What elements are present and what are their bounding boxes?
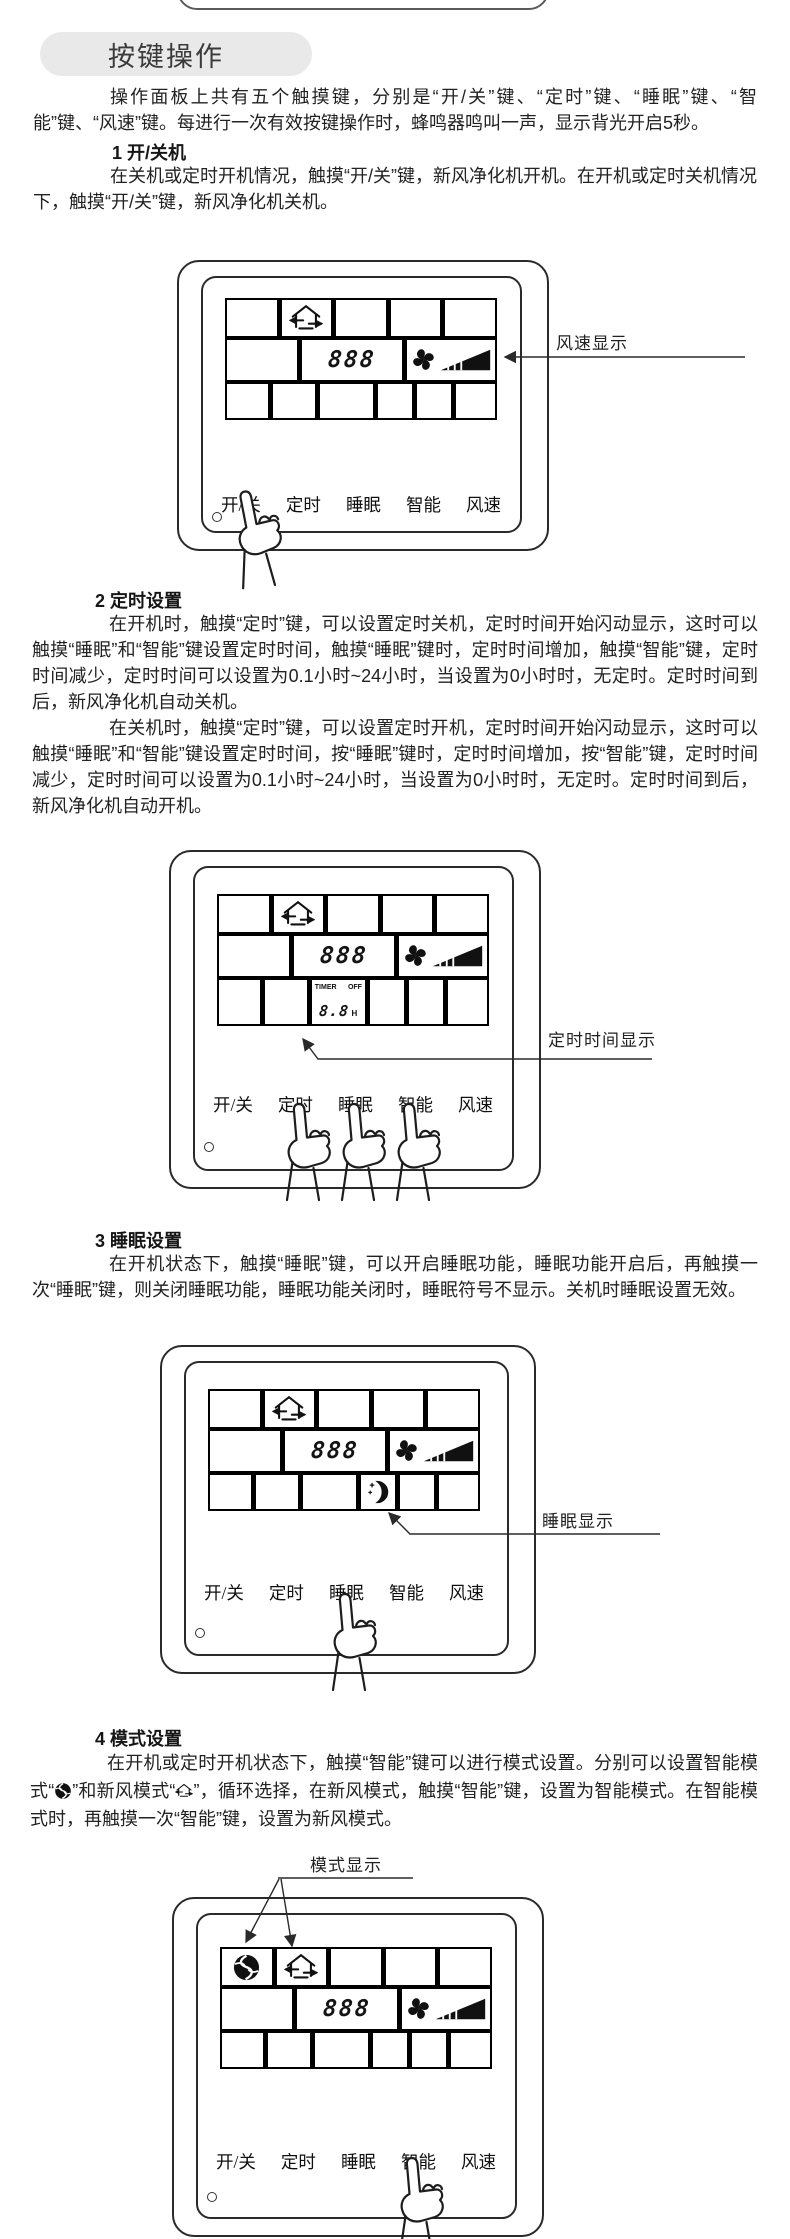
- lcd-cell: [440, 1949, 490, 1985]
- lcd-cell: [219, 896, 269, 932]
- callout-sleep-display: 睡眠显示: [542, 1507, 614, 1532]
- lcd-cell-timer: TIMER OFF 8.8 H: [312, 980, 365, 1024]
- lcd-cell: [370, 980, 404, 1024]
- lcd-display: 888: [208, 1389, 480, 1511]
- lcd-cell-fresh-air: [265, 1391, 315, 1427]
- lcd-row-3: TIMER OFF 8.8 H: [219, 980, 487, 1024]
- crescent-moon-icon: [367, 1479, 389, 1505]
- button-label-timer: 定时: [286, 492, 321, 517]
- lcd-cell: [227, 384, 268, 418]
- button-label-fan: 风速: [466, 492, 501, 517]
- button-label-smart: 智能: [406, 492, 441, 517]
- smart-mode-icon: [232, 1953, 261, 1982]
- lcd-display: 888: [225, 298, 497, 420]
- house-fresh-air-icon: [289, 304, 323, 333]
- lcd-row-2: 888: [222, 1989, 490, 2029]
- lcd-cell: [303, 1475, 356, 1509]
- lcd-cell: [451, 2033, 490, 2067]
- lcd-cell: [222, 1989, 292, 2029]
- section-1-title: 1 开/关机: [112, 139, 186, 165]
- lcd-cell: [320, 384, 373, 418]
- lcd-cell: [412, 2033, 446, 2067]
- button-label-power: 开/关: [216, 2149, 256, 2174]
- lcd-cell: [456, 384, 495, 418]
- house-fresh-air-icon: [281, 900, 315, 929]
- smart-mode-icon: [54, 1782, 72, 1800]
- lcd-cell-digits: 888: [285, 1431, 386, 1471]
- lcd-cell-digits: 888: [297, 1989, 398, 2029]
- pointing-hand-icon: [393, 2156, 455, 2239]
- callout-timer-display: 定时时间显示: [548, 1026, 656, 1051]
- lcd-cell: [219, 980, 260, 1024]
- pointing-hand-icon: [280, 1102, 342, 1202]
- button-label-power: 开/关: [213, 1092, 253, 1117]
- lcd-row-3: [210, 1475, 478, 1509]
- lcd-cell: [383, 896, 433, 932]
- lcd-cell: [373, 2033, 407, 2067]
- button-label-power: 开/关: [204, 1580, 244, 1605]
- lcd-cell: [268, 2033, 309, 2067]
- lcd-cell: [210, 1431, 280, 1471]
- timer-digits: 8.8: [319, 1002, 351, 1020]
- lcd-cell-fan-speed: [402, 1989, 490, 2029]
- timer-label: TIMER: [315, 984, 337, 991]
- lcd-cell: [336, 300, 386, 336]
- lcd-digits: 888: [319, 943, 369, 969]
- indicator-led: [212, 512, 222, 522]
- lcd-digits: 888: [327, 347, 377, 373]
- lcd-row-1: [210, 1391, 478, 1427]
- lcd-cell: [319, 1391, 369, 1427]
- lcd-cell: [378, 384, 412, 418]
- pointing-hand-icon: [335, 1102, 397, 1202]
- lcd-cell-digits: 888: [294, 936, 395, 976]
- pointing-hand-icon: [326, 1592, 388, 1692]
- previous-figure-bottom-edge: [177, 0, 549, 10]
- lcd-cell: [437, 896, 487, 932]
- control-panel-figure-4: 888 开/关 定时 睡眠 智能 风速: [172, 1897, 544, 2237]
- indicator-led: [195, 1628, 205, 1638]
- lcd-cell: [315, 2033, 368, 2067]
- lcd-row-2: 888: [210, 1431, 478, 1471]
- lcd-cell: [386, 1949, 436, 1985]
- lcd-display: 888: [220, 1947, 492, 2069]
- lcd-row-1: [222, 1949, 490, 1985]
- lcd-row-1: [219, 896, 487, 932]
- section-1-paragraph: 在关机或定时开机情况，触摸“开/关”键，新风净化机开机。在开机或定时关机情况下，…: [33, 163, 757, 215]
- section-2-title: 2 定时设置: [95, 587, 182, 613]
- section-4-text-part: ”和新风模式“: [72, 1781, 175, 1801]
- lcd-digits: 888: [310, 1438, 360, 1464]
- lcd-cell-fan-speed: [390, 1431, 478, 1471]
- section-2-paragraph-1: 在开机时，触摸“定时”键，可以设置定时关机，定时时间开始闪动显示，这时可以触摸“…: [32, 611, 758, 715]
- lcd-cell: [265, 980, 306, 1024]
- lcd-cell-fan-speed: [399, 936, 487, 976]
- section-header-pill: 按键操作: [40, 32, 312, 76]
- lcd-row-1: [227, 300, 495, 336]
- button-label-fan: 风速: [458, 1092, 493, 1117]
- lcd-cell: [428, 1391, 478, 1427]
- lcd-display: 888 TIMER OFF 8.8: [217, 894, 489, 1026]
- page-title: 按键操作: [108, 35, 224, 74]
- section-4-title: 4 模式设置: [95, 1725, 182, 1751]
- fan-speed-icon: [391, 1437, 477, 1465]
- lcd-cell-fresh-air: [277, 1949, 327, 1985]
- button-label-sleep: 睡眠: [341, 2149, 376, 2174]
- lcd-row-2: 888: [227, 340, 495, 380]
- lcd-cell-fresh-air: [274, 896, 324, 932]
- button-label-fan: 风速: [449, 1580, 484, 1605]
- button-label-timer: 定时: [269, 1580, 304, 1605]
- lcd-cell-fresh-air: [282, 300, 332, 336]
- fan-speed-icon: [403, 1995, 489, 2023]
- section-2-paragraph-2: 在关机时，触摸“定时”键，可以设置定时开机，定时时间开始闪动显示，这时可以触摸“…: [32, 715, 758, 819]
- lcd-cell: [331, 1949, 381, 1985]
- lcd-cell: [409, 980, 443, 1024]
- lcd-cell: [328, 896, 378, 932]
- fan-speed-icon: [400, 942, 486, 970]
- button-label-sleep: 睡眠: [346, 492, 381, 517]
- callout-mode-display: 模式显示: [310, 1851, 382, 1876]
- lcd-cell: [210, 1391, 260, 1427]
- section-3-paragraph: 在开机状态下，触摸“睡眠”键，可以开启睡眠功能，睡眠功能开启后，再触摸一次“睡眠…: [32, 1251, 758, 1303]
- lcd-cell: [374, 1391, 424, 1427]
- lcd-cell: [227, 340, 297, 380]
- lcd-cell: [256, 1475, 297, 1509]
- lcd-cell-smart-mode: [222, 1949, 272, 1985]
- button-label-timer: 定时: [281, 2149, 316, 2174]
- lcd-cell-fan-speed: [407, 340, 495, 380]
- house-fresh-air-icon: [284, 1953, 318, 1982]
- lcd-cell: [273, 384, 314, 418]
- indicator-led: [207, 2192, 217, 2202]
- button-label-smart: 智能: [389, 1580, 424, 1605]
- timer-state: OFF: [348, 984, 362, 991]
- pointing-hand-icon: [390, 1102, 452, 1202]
- lcd-cell: [439, 1475, 478, 1509]
- lcd-row-3: [222, 2033, 490, 2067]
- lcd-row-2: 888: [219, 936, 487, 976]
- lcd-cell: [210, 1475, 251, 1509]
- house-fresh-air-icon: [272, 1395, 306, 1424]
- house-fresh-air-icon: [175, 1782, 193, 1800]
- lcd-cell: [391, 300, 441, 336]
- lcd-cell: [227, 300, 277, 336]
- pointing-hand-icon: [226, 485, 298, 591]
- section-3-title: 3 睡眠设置: [95, 1227, 182, 1253]
- timer-display: TIMER OFF 8.8 H: [314, 982, 363, 1022]
- manual-page: 按键操作 操作面板上共有五个触摸键，分别是“开/关”键、“定时”键、“睡眠”键、…: [0, 0, 790, 2239]
- lcd-cell: [417, 384, 451, 418]
- intro-paragraph: 操作面板上共有五个触摸键，分别是“开/关”键、“定时”键、“睡眠”键、“智能”键…: [33, 84, 757, 136]
- lcd-row-3: [227, 384, 495, 418]
- callout-fan-speed-display: 风速显示: [556, 329, 628, 354]
- lcd-digits: 888: [322, 1996, 372, 2022]
- lcd-cell: [219, 936, 289, 976]
- lcd-cell: [448, 980, 487, 1024]
- lcd-cell: [222, 2033, 263, 2067]
- timer-unit: H: [352, 1009, 358, 1018]
- lcd-cell-sleep: [361, 1475, 395, 1509]
- indicator-led: [204, 1142, 214, 1152]
- lcd-cell: [400, 1475, 434, 1509]
- lcd-cell-digits: 888: [302, 340, 403, 380]
- fan-speed-icon: [408, 346, 494, 374]
- section-4-paragraph: 在开机或定时开机状态下，触摸“智能”键可以进行模式设置。分别可以设置智能模式“”…: [30, 1749, 758, 1833]
- button-label-fan: 风速: [461, 2149, 496, 2174]
- lcd-cell: [445, 300, 495, 336]
